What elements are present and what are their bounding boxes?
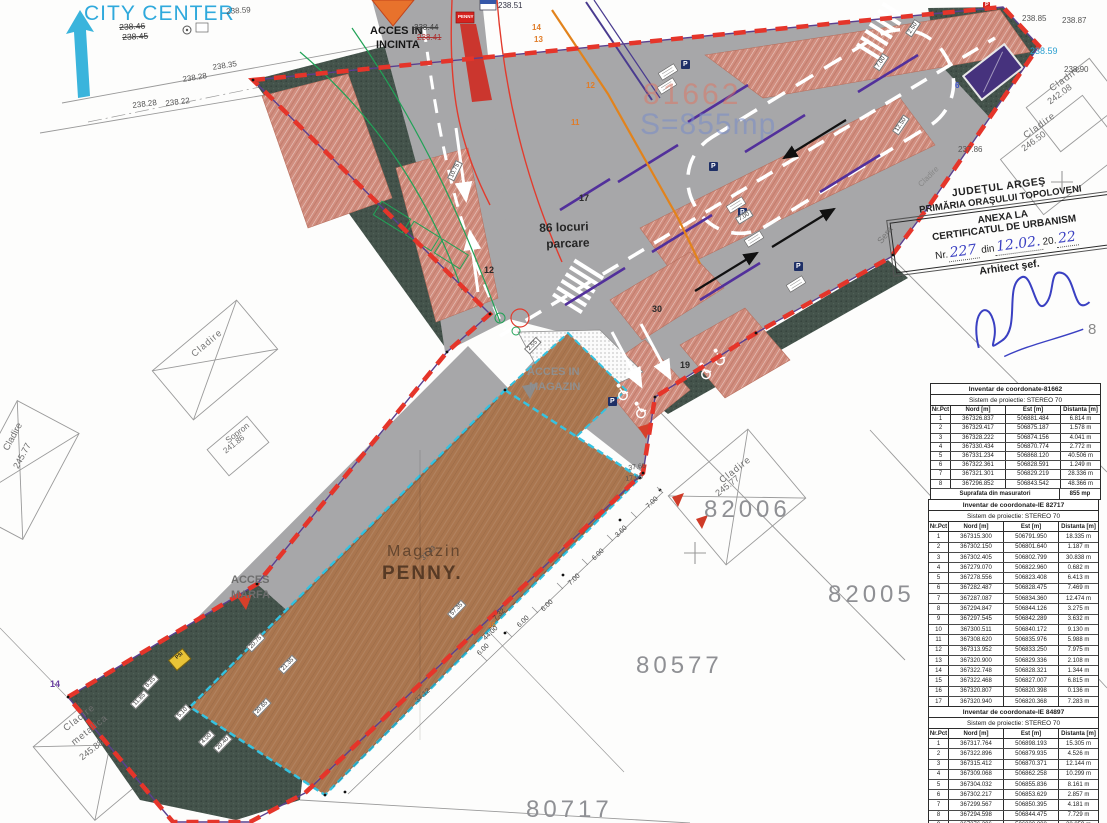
table-col-header: Distanta [m]: [1059, 522, 1098, 531]
table-cell: 367331.234: [951, 452, 1006, 460]
table-row: 7367287.087506834.36012.474 m: [929, 594, 1098, 604]
table-cell: 1: [929, 739, 949, 748]
table-title: Inventar de coordonate-81662: [931, 384, 1100, 395]
table-cell: 506862.258: [1004, 770, 1059, 779]
table-row: 5367304.032506855.8368.161 m: [929, 780, 1098, 790]
table-cell: 367300.511: [949, 625, 1004, 634]
table-cell: 6.815 m: [1059, 676, 1098, 685]
table-cell: 1.344 m: [1059, 666, 1098, 675]
table-cell: 506820.398: [1004, 687, 1059, 696]
table-cell: 506828.475: [1004, 584, 1059, 593]
table-cell: 1: [929, 532, 949, 541]
elevation-sign-238-51: [480, 0, 496, 10]
table-row: 2367302.150506801.6401.187 m: [929, 543, 1098, 553]
table-cell: 367296.852: [951, 480, 1006, 488]
table-cell: 506823.408: [1004, 573, 1059, 582]
table-cell: 506879.935: [1004, 749, 1059, 758]
table-row: 1367317.764506898.19315.305 m: [929, 739, 1098, 749]
table-cell: 15.305 m: [1059, 739, 1098, 748]
table-cell: 6: [931, 461, 951, 469]
table-projection-system: Sistem de proiectie: STEREO 70: [929, 718, 1098, 729]
table-cell: 506850.395: [1004, 800, 1059, 809]
table-cell: 2.857 m: [1059, 790, 1098, 799]
table-cell: 506828.591: [1006, 461, 1061, 469]
table-cell: 367322.748: [949, 666, 1004, 675]
table-row: 4367309.068506862.25810.299 m: [929, 770, 1098, 780]
table-cell: 8: [931, 480, 951, 488]
table-cell: 367278.556: [949, 573, 1004, 582]
table-footer-cell: Suprafata din masuratori: [931, 489, 1060, 499]
table-cell: 6: [929, 790, 949, 799]
table-row: 3367328.222506874.1564.041 m: [931, 434, 1100, 443]
table-title: Inventar de coordonate-IE 82717: [929, 500, 1098, 511]
table-cell: 7: [929, 594, 949, 603]
table-cell: 5: [931, 452, 951, 460]
table-row: 4367279.070506822.9600.682 m: [929, 563, 1098, 573]
table-header-row: Nr.PctNord [m]Est [m]Distanta [m]: [931, 406, 1100, 415]
table-cell: 2: [929, 749, 949, 758]
table-row: 5367331.234506868.12040.506 m: [931, 452, 1100, 461]
table-cell: 367330.434: [951, 443, 1006, 451]
table-cell: 9: [929, 615, 949, 624]
table-cell: 2: [931, 424, 951, 432]
table-cell: 367320.900: [949, 656, 1004, 665]
table-cell: 4.181 m: [1059, 800, 1098, 809]
table-row: 8367294.847506844.1263.275 m: [929, 604, 1098, 614]
table-cell: 12.474 m: [1059, 594, 1098, 603]
table-cell: 0.682 m: [1059, 563, 1098, 572]
table-cell: 506853.629: [1004, 790, 1059, 799]
table-cell: 367322.361: [951, 461, 1006, 469]
table-cell: 2: [929, 543, 949, 552]
table-cell: 367279.070: [949, 563, 1004, 572]
table-cell: 367328.222: [951, 434, 1006, 442]
table-row: 1367315.300506791.95018.335 m: [929, 532, 1098, 542]
coordinate-table-ie-84897: Inventar de coordonate-IE 84897Sistem de…: [928, 706, 1099, 823]
table-cell: 3.632 m: [1059, 615, 1098, 624]
site-plan-page: CITY CENTER238.59238.46238.45238.35238.2…: [0, 0, 1107, 823]
table-cell: 506791.950: [1004, 532, 1059, 541]
table-cell: 13: [929, 656, 949, 665]
table-cell: 506874.156: [1006, 434, 1061, 442]
table-cell: 12: [929, 646, 949, 655]
table-cell: 12.144 m: [1059, 760, 1098, 769]
table-cell: 367294.598: [949, 811, 1004, 820]
table-projection-system: Sistem de proiectie: STEREO 70: [929, 511, 1098, 522]
stamp-nr-label: Nr.: [935, 249, 949, 262]
table-cell: 367315.412: [949, 760, 1004, 769]
table-col-header: Nord [m]: [949, 729, 1004, 738]
table-row: 1367326.837506881.4846.814 m: [931, 415, 1100, 424]
table-row: 6367282.487506828.4757.469 m: [929, 584, 1098, 594]
table-row: 8367294.598506844.4757.729 m: [929, 811, 1098, 821]
table-row: 7367321.301506829.21928.336 m: [931, 470, 1100, 479]
table-cell: 506833.250: [1004, 646, 1059, 655]
table-cell: 506822.960: [1004, 563, 1059, 572]
table-cell: 1.578 m: [1061, 424, 1100, 432]
table-row: 3367315.412506870.37112.144 m: [929, 760, 1098, 770]
table-cell: 506844.126: [1004, 604, 1059, 613]
table-row: 6367322.361506828.5911.249 m: [931, 461, 1100, 470]
table-cell: 2.772 m: [1061, 443, 1100, 451]
table-cell: 7.729 m: [1059, 811, 1098, 820]
table-cell: 30.838 m: [1059, 553, 1098, 562]
table-cell: 506801.640: [1004, 543, 1059, 552]
table-projection-system: Sistem de proiectie: STEREO 70: [931, 395, 1100, 406]
table-cell: 8: [929, 811, 949, 820]
table-cell: 18.335 m: [1059, 532, 1098, 541]
table-col-header: Nr.Pct: [929, 729, 949, 738]
table-cell: 506875.187: [1006, 424, 1061, 432]
table-cell: 367329.417: [951, 424, 1006, 432]
table-cell: 10: [929, 625, 949, 634]
table-row: 5367278.556506823.4086.413 m: [929, 573, 1098, 583]
table-cell: 15: [929, 676, 949, 685]
table-cell: 506868.120: [1006, 452, 1061, 460]
table-cell: 4: [929, 563, 949, 572]
table-row: 10367300.511506840.1729.130 m: [929, 625, 1098, 635]
table-cell: 7.283 m: [1059, 697, 1098, 706]
table-cell: 506834.360: [1004, 594, 1059, 603]
table-cell: 3: [929, 760, 949, 769]
table-cell: 0.136 m: [1059, 687, 1098, 696]
table-col-header: Nr.Pct: [929, 522, 949, 531]
table-cell: 7: [931, 470, 951, 478]
table-cell: 367322.468: [949, 676, 1004, 685]
table-title: Inventar de coordonate-IE 84897: [929, 707, 1098, 718]
table-cell: 367302.150: [949, 543, 1004, 552]
table-col-header: Est [m]: [1004, 522, 1059, 531]
table-cell: 367304.032: [949, 780, 1004, 789]
table-cell: 6.413 m: [1059, 573, 1098, 582]
table-col-header: Est [m]: [1004, 729, 1059, 738]
table-cell: 367317.764: [949, 739, 1004, 748]
city-center-arrow-icon: [66, 10, 94, 98]
table-col-header: Est [m]: [1006, 406, 1061, 414]
table-row: 15367322.468506827.0076.815 m: [929, 676, 1098, 686]
table-cell: 367302.217: [949, 790, 1004, 799]
table-cell: 367302.405: [949, 553, 1004, 562]
table-cell: 1: [931, 415, 951, 423]
table-cell: 4.041 m: [1061, 434, 1100, 442]
table-col-header: Distanta [m]: [1059, 729, 1098, 738]
table-row: 2367322.896506879.9354.526 m: [929, 749, 1098, 759]
table-cell: 506870.371: [1004, 760, 1059, 769]
coordinate-table-ie-82717: Inventar de coordonate-IE 82717Sistem de…: [928, 499, 1099, 729]
table-cell: 8: [929, 604, 949, 613]
table-cell: 1.249 m: [1061, 461, 1100, 469]
table-cell: 28.336 m: [1061, 470, 1100, 478]
table-cell: 40.506 m: [1061, 452, 1100, 460]
table-cell: 506829.336: [1004, 656, 1059, 665]
table-row: 14367322.748506828.3211.344 m: [929, 666, 1098, 676]
table-footer: Suprafata din masuratori855 mp: [931, 489, 1100, 499]
table-cell: 5: [929, 780, 949, 789]
stamp-date-value: 12.02.: [993, 233, 1043, 256]
table-footer-cell: 855 mp: [1060, 489, 1100, 499]
table-cell: 367299.567: [949, 800, 1004, 809]
table-header-row: Nr.PctNord [m]Est [m]Distanta [m]: [929, 729, 1098, 739]
table-header-row: Nr.PctNord [m]Est [m]Distanta [m]: [929, 522, 1098, 532]
table-cell: 367308.620: [949, 635, 1004, 644]
table-cell: 367282.487: [949, 584, 1004, 593]
table-cell: 506835.976: [1004, 635, 1059, 644]
table-cell: 367297.545: [949, 615, 1004, 624]
table-cell: 6.814 m: [1061, 415, 1100, 423]
benchmark-symbol: [183, 23, 208, 34]
table-cell: 367309.068: [949, 770, 1004, 779]
table-cell: 506855.836: [1004, 780, 1059, 789]
table-cell: 506881.484: [1006, 415, 1061, 423]
table-cell: 506820.368: [1004, 697, 1059, 706]
stamp-nr-value: 227: [947, 241, 980, 262]
table-cell: 3: [929, 553, 949, 562]
table-cell: 367313.952: [949, 646, 1004, 655]
table-cell: 506870.774: [1006, 443, 1061, 451]
table-cell: 11: [929, 635, 949, 644]
table-cell: 8.161 m: [1059, 780, 1098, 789]
table-cell: 4: [931, 443, 951, 451]
table-cell: 48.366 m: [1061, 480, 1100, 488]
table-col-header: Nord [m]: [951, 406, 1006, 414]
table-cell: 4: [929, 770, 949, 779]
table-cell: 7: [929, 800, 949, 809]
table-cell: 3.275 m: [1059, 604, 1098, 613]
table-cell: 506829.219: [1006, 470, 1061, 478]
table-col-header: Nr.Pct: [931, 406, 951, 414]
table-cell: 506828.321: [1004, 666, 1059, 675]
table-row: 9367297.545506842.2893.632 m: [929, 615, 1098, 625]
table-cell: 506844.475: [1004, 811, 1059, 820]
table-row: 11367308.620506835.9765.988 m: [929, 635, 1098, 645]
table-cell: 1.187 m: [1059, 543, 1098, 552]
table-cell: 367294.847: [949, 604, 1004, 613]
table-cell: 2.108 m: [1059, 656, 1098, 665]
table-cell: 4.526 m: [1059, 749, 1098, 758]
table-row: 4367330.434506870.7742.772 m: [931, 443, 1100, 452]
table-cell: 367315.300: [949, 532, 1004, 541]
table-cell: 367322.896: [949, 749, 1004, 758]
architect-signature: [962, 253, 1104, 365]
table-cell: 367320.807: [949, 687, 1004, 696]
table-row: 12367313.952506833.2507.975 m: [929, 646, 1098, 656]
table-cell: 506843.542: [1006, 480, 1061, 488]
table-cell: 7.975 m: [1059, 646, 1098, 655]
table-row: 3367302.405506802.79930.838 m: [929, 553, 1098, 563]
table-row: 7367299.567506850.3954.181 m: [929, 800, 1098, 810]
table-cell: 506802.799: [1004, 553, 1059, 562]
coordinate-table-81662: Inventar de coordonate-81662Sistem de pr…: [930, 383, 1101, 500]
table-cell: 17: [929, 697, 949, 706]
table-cell: 9.130 m: [1059, 625, 1098, 634]
table-cell: 6: [929, 584, 949, 593]
table-cell: 5.988 m: [1059, 635, 1098, 644]
stamp-din-label: din: [981, 243, 996, 256]
table-cell: 506898.193: [1004, 739, 1059, 748]
table-row: 2367329.417506875.1871.578 m: [931, 424, 1100, 433]
table-cell: 3: [931, 434, 951, 442]
table-cell: 506827.007: [1004, 676, 1059, 685]
table-cell: 367320.940: [949, 697, 1004, 706]
table-cell: 367287.087: [949, 594, 1004, 603]
stamp-year-value: 22: [1055, 228, 1079, 248]
table-cell: 7.469 m: [1059, 584, 1098, 593]
table-cell: 367321.301: [951, 470, 1006, 478]
table-row: 13367320.900506829.3362.108 m: [929, 656, 1098, 666]
table-cell: 506842.289: [1004, 615, 1059, 624]
table-cell: 14: [929, 666, 949, 675]
table-cell: 16: [929, 687, 949, 696]
table-col-header: Distanta [m]: [1061, 406, 1100, 414]
table-row: 8367296.852506843.54248.366 m: [931, 480, 1100, 489]
table-row: 6367302.217506853.6292.857 m: [929, 790, 1098, 800]
table-cell: 10.299 m: [1059, 770, 1098, 779]
table-cell: 367326.837: [951, 415, 1006, 423]
table-cell: 5: [929, 573, 949, 582]
table-col-header: Nord [m]: [949, 522, 1004, 531]
table-cell: 506840.172: [1004, 625, 1059, 634]
table-row: 16367320.807506820.3980.136 m: [929, 687, 1098, 697]
